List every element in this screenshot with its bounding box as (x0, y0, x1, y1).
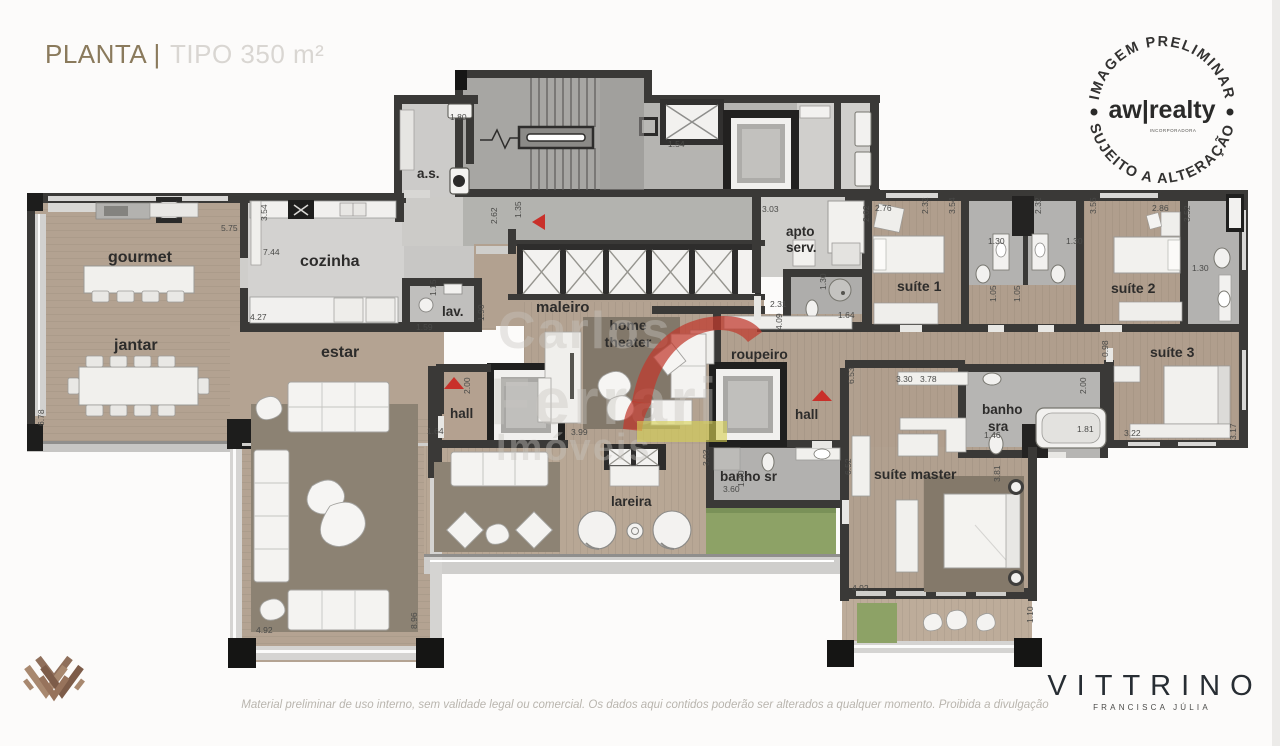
svg-text:2.02: 2.02 (861, 205, 871, 222)
svg-text:PLANTA |: PLANTA | (45, 39, 161, 69)
svg-text:gourmet: gourmet (108, 249, 173, 266)
svg-text:6.78: 6.78 (36, 409, 46, 426)
svg-text:INCORPORADORA: INCORPORADORA (1150, 128, 1197, 133)
svg-text:2.00: 2.00 (1078, 377, 1088, 394)
svg-text:3.52: 3.52 (1182, 205, 1192, 222)
svg-text:2.76: 2.76 (875, 203, 892, 213)
svg-text:apto: apto (786, 224, 815, 239)
svg-text:3.30: 3.30 (896, 374, 913, 384)
svg-text:suíte master: suíte master (874, 466, 957, 482)
svg-text:5.75: 5.75 (221, 223, 238, 233)
svg-text:1.30: 1.30 (1192, 263, 1209, 273)
svg-text:4.09: 4.09 (774, 313, 784, 330)
svg-text:1.64: 1.64 (838, 310, 855, 320)
svg-text:1.64: 1.64 (427, 426, 444, 436)
svg-text:3.54: 3.54 (947, 197, 957, 214)
svg-text:3.81: 3.81 (992, 465, 1002, 482)
svg-text:0.98: 0.98 (1100, 340, 1110, 357)
svg-text:2.32: 2.32 (920, 197, 930, 214)
svg-text:jantar: jantar (113, 337, 158, 354)
svg-text:FRANCISCA JÚLIA: FRANCISCA JÚLIA (1093, 703, 1211, 712)
svg-text:1.90: 1.90 (476, 304, 486, 321)
svg-text:1.59: 1.59 (416, 322, 433, 332)
svg-text:1.30: 1.30 (988, 236, 1005, 246)
svg-text:4.27: 4.27 (250, 312, 267, 322)
svg-text:Carlos: Carlos (498, 302, 672, 360)
svg-text:3.03: 3.03 (701, 449, 711, 466)
svg-text:TIPO 350 m²: TIPO 350 m² (170, 39, 324, 69)
svg-text:suíte 1: suíte 1 (897, 278, 942, 294)
svg-text:1.54: 1.54 (668, 139, 685, 149)
svg-text:a.s.: a.s. (417, 166, 440, 181)
svg-text:2.32: 2.32 (1033, 197, 1043, 214)
svg-text:banho sr: banho sr (720, 469, 778, 484)
svg-text:7.44: 7.44 (263, 247, 280, 257)
svg-text:lav.: lav. (442, 304, 464, 319)
svg-text:serv.: serv. (786, 240, 817, 255)
svg-text:cozinha: cozinha (300, 253, 360, 270)
svg-text:Material preliminar de uso int: Material preliminar de uso interno, sem … (241, 699, 1049, 711)
svg-text:1.05: 1.05 (1012, 285, 1022, 302)
svg-text:3.55: 3.55 (1088, 197, 1098, 214)
svg-text:2.00: 2.00 (462, 377, 472, 394)
svg-text:2.31: 2.31 (770, 299, 787, 309)
svg-text:3.22: 3.22 (1124, 428, 1141, 438)
svg-text:3.78: 3.78 (920, 374, 937, 384)
svg-text:lareira: lareira (611, 494, 652, 509)
svg-text:3.03: 3.03 (762, 204, 779, 214)
svg-text:3.54: 3.54 (259, 204, 269, 221)
svg-text:2.86: 2.86 (1152, 203, 1169, 213)
svg-text:aw|realty: aw|realty (1108, 96, 1215, 124)
svg-text:Imóveis: Imóveis (496, 427, 652, 469)
svg-text:2.62: 2.62 (489, 207, 499, 224)
svg-text:hall: hall (450, 406, 473, 421)
svg-text:1.81: 1.81 (1077, 424, 1094, 434)
svg-text:banho: banho (982, 402, 1023, 417)
svg-text:3.17: 3.17 (1228, 423, 1238, 440)
svg-text:1.35: 1.35 (513, 201, 523, 218)
svg-text:1.30: 1.30 (1066, 236, 1083, 246)
svg-text:suíte 3: suíte 3 (1150, 344, 1195, 360)
svg-text:hall: hall (795, 407, 818, 422)
svg-text:1.46: 1.46 (984, 430, 1001, 440)
svg-text:6.52: 6.52 (843, 458, 853, 475)
svg-text:estar: estar (321, 344, 359, 361)
svg-text:8.96: 8.96 (409, 612, 419, 629)
svg-text:1.15: 1.15 (428, 279, 438, 296)
svg-text:4.92: 4.92 (852, 583, 869, 593)
svg-text:suíte 2: suíte 2 (1111, 280, 1156, 296)
svg-text:1.05: 1.05 (988, 285, 998, 302)
svg-text:6.53: 6.53 (846, 367, 856, 384)
svg-text:1.80: 1.80 (450, 112, 467, 122)
svg-text:1.30: 1.30 (818, 273, 828, 290)
svg-text:1.10: 1.10 (1025, 606, 1035, 623)
svg-text:1.40: 1.40 (736, 470, 746, 487)
svg-text:VITTRINO: VITTRINO (1047, 670, 1262, 702)
svg-text:roupeiro: roupeiro (731, 346, 788, 362)
svg-text:4.92: 4.92 (256, 625, 273, 635)
